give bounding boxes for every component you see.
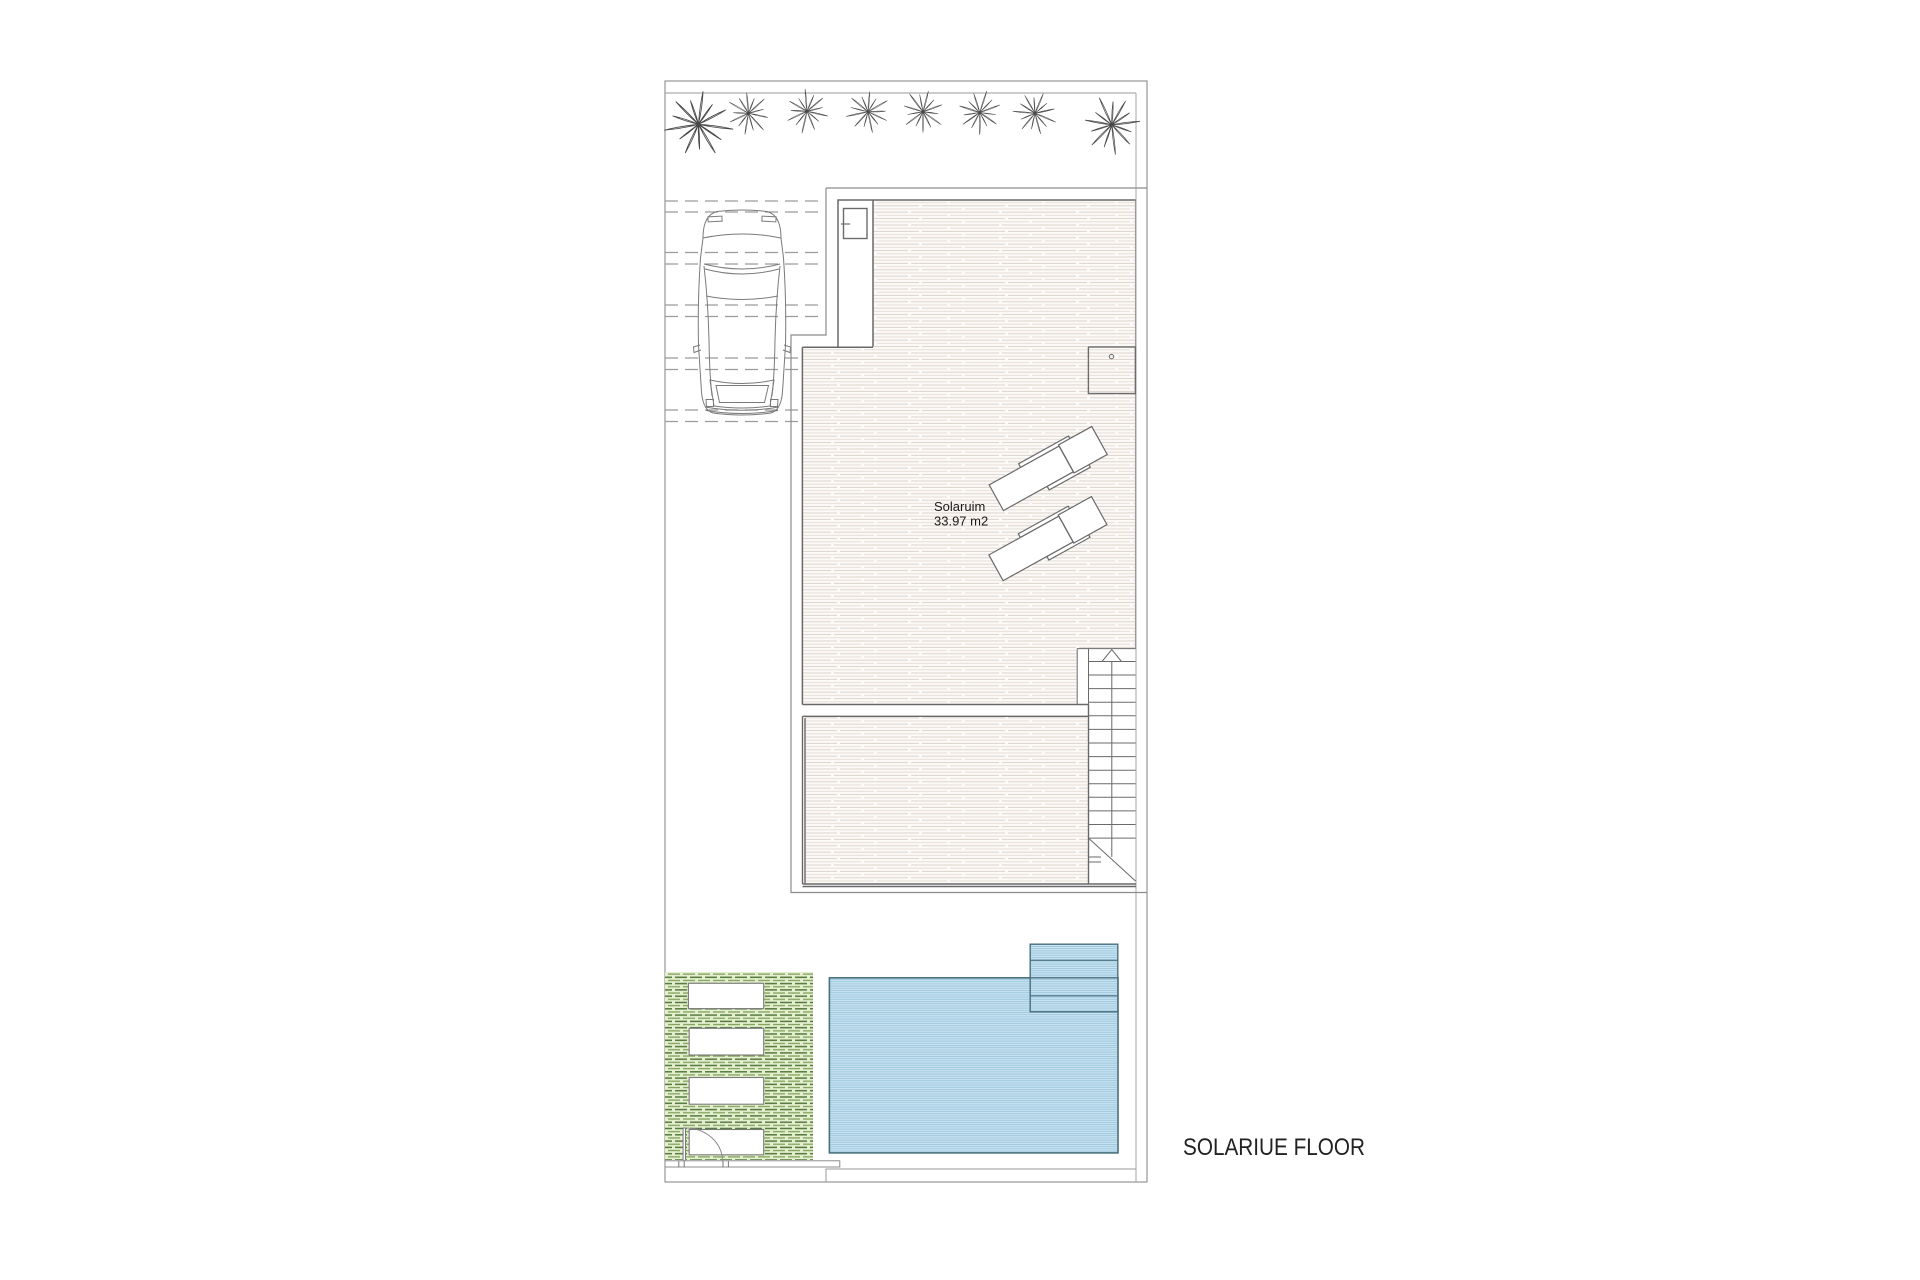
svg-text:33.97 m2: 33.97 m2	[934, 514, 988, 529]
svg-text:Solaruim: Solaruim	[934, 499, 985, 514]
svg-text:SOLARIUE FLOOR: SOLARIUE FLOOR	[1183, 1134, 1365, 1161]
